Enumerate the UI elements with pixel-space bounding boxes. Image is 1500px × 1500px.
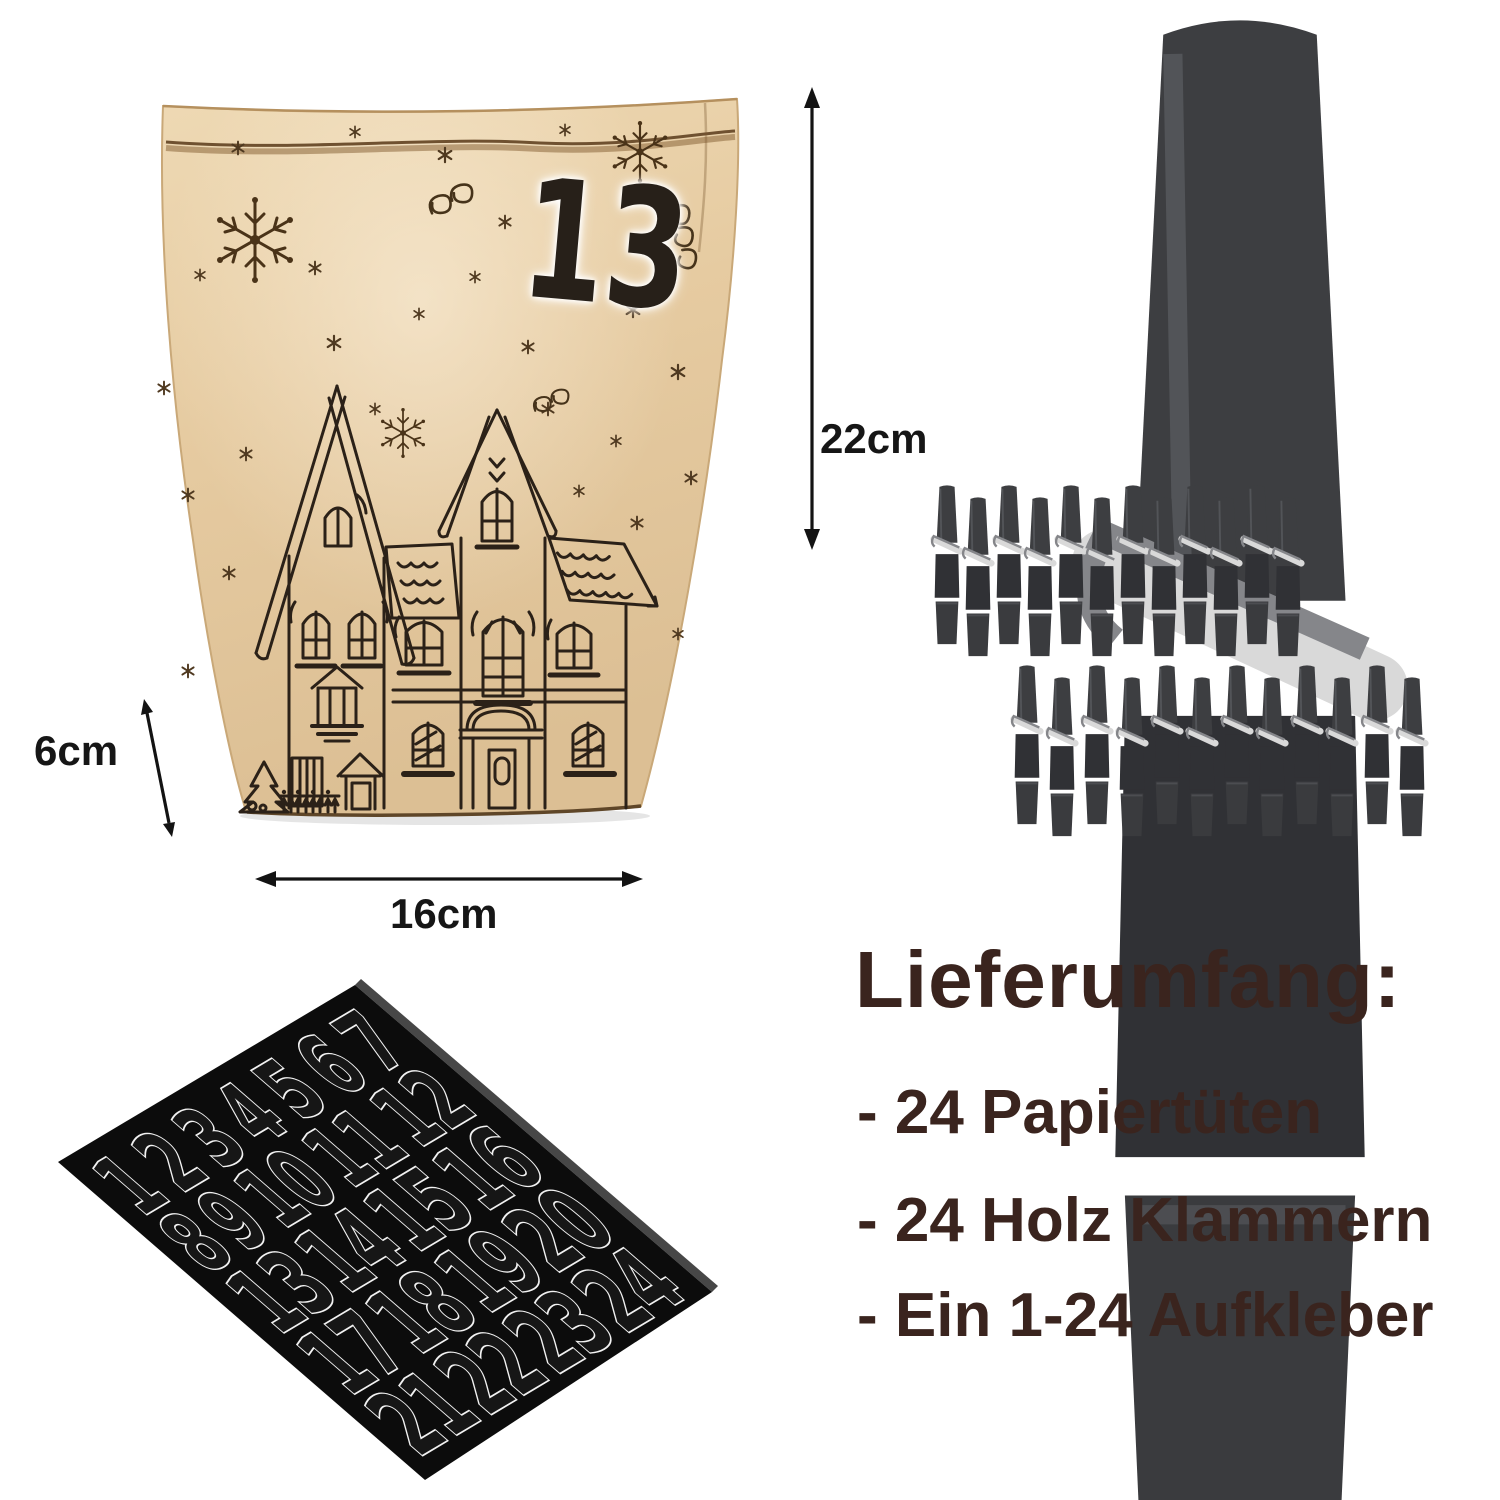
depth-dimension-label: 6cm bbox=[34, 730, 118, 772]
clothespin-icon bbox=[1358, 664, 1396, 827]
clothespin-icon bbox=[1323, 676, 1361, 839]
clothespin-icon bbox=[1218, 664, 1256, 827]
clothespin-icon bbox=[1083, 496, 1121, 659]
width-dimension-label: 16cm bbox=[390, 893, 497, 935]
clothespin-icon bbox=[1078, 664, 1116, 827]
depth-arrow bbox=[147, 713, 169, 823]
clothespin-icon bbox=[1183, 676, 1221, 839]
clothespin-icon bbox=[1269, 496, 1307, 659]
clothespin-icon bbox=[1288, 664, 1326, 827]
clothespin-icon bbox=[1145, 496, 1183, 659]
contents-item-papiertueten: - 24 Papiertüten bbox=[857, 1082, 1322, 1144]
clothespin-icon bbox=[1021, 496, 1059, 659]
clothespin-icon bbox=[959, 496, 997, 659]
clothespin-row bbox=[928, 484, 1300, 647]
clothespin-icon bbox=[1008, 664, 1046, 827]
contents-item-holz-klammern: - 24 Holz Klammern bbox=[857, 1190, 1432, 1252]
clothespin-icon bbox=[1393, 676, 1431, 839]
clothespin-row bbox=[1008, 664, 1428, 827]
clothespin-icon bbox=[1043, 676, 1081, 839]
contents-heading: Lieferumfang: bbox=[855, 940, 1401, 1020]
contents-item-aufkleber: - Ein 1-24 Aufkleber bbox=[857, 1285, 1434, 1347]
clothespin-icon bbox=[1207, 496, 1245, 659]
bag-door-number: 13 bbox=[516, 157, 659, 333]
height-dimension-label: 22cm bbox=[820, 418, 927, 460]
product-infographic: 123456789101112131415161718192021222324 … bbox=[0, 0, 1500, 1500]
clothespin-icon bbox=[1148, 664, 1186, 827]
clothespin-icon bbox=[1253, 676, 1291, 839]
clothespin-icon bbox=[1113, 676, 1151, 839]
